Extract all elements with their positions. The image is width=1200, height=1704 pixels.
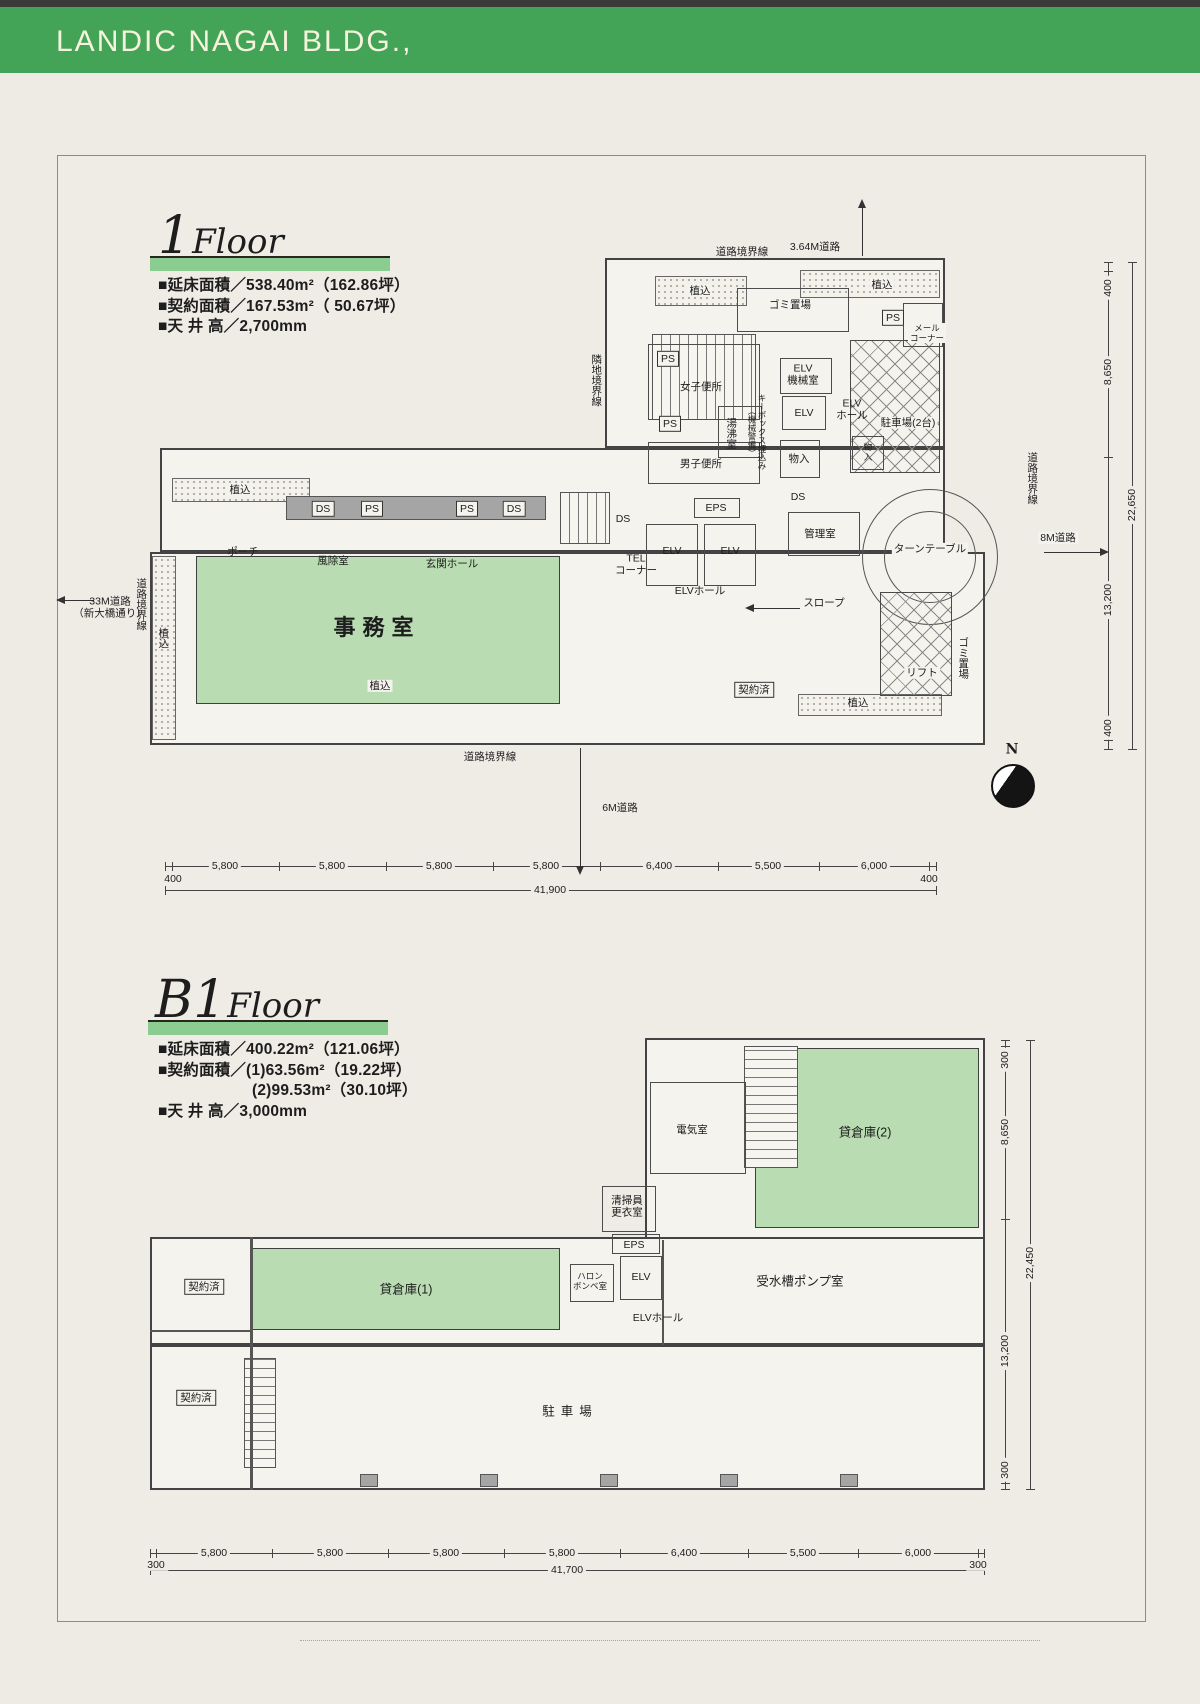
plan-label: ELVホール xyxy=(633,1312,684,1324)
plan-label: ハロン ボンベ室 xyxy=(573,1271,607,1291)
plan-label: 清掃員 更衣室 xyxy=(611,1195,643,1220)
plan-label: 300 xyxy=(144,1559,168,1571)
plan-label: 貸倉庫(1) xyxy=(380,1283,433,1298)
plan-label: 受水槽ポンプ室 xyxy=(756,1275,843,1290)
b1-labels: 電気室貸倉庫(2)清掃員 更衣室EPSハロン ボンベ室ELVELVホール受水槽ポ… xyxy=(0,0,1200,1704)
brochure-page: LANDIC NAGAI BLDG., 1Floor ■延床面積／538.40m… xyxy=(0,0,1200,1704)
plan-label: 5,800 xyxy=(546,1547,578,1559)
plan-label: 13,200 xyxy=(999,1332,1011,1370)
plan-label: 22,450 xyxy=(1024,1244,1036,1282)
plan-label: 300 xyxy=(966,1559,990,1571)
plan-label: 貸倉庫(2) xyxy=(839,1126,892,1141)
plan-label: ELV xyxy=(631,1271,650,1283)
plan-label: 契約済 xyxy=(184,1279,224,1295)
plan-label: 6,400 xyxy=(668,1547,700,1559)
plan-label: 5,800 xyxy=(198,1547,230,1559)
plan-label: 契約済 xyxy=(176,1390,216,1406)
plan-label: 5,500 xyxy=(787,1547,819,1559)
plan-label: 駐車場 xyxy=(542,1405,598,1420)
plan-label: 電気室 xyxy=(676,1124,708,1136)
plan-label: 300 xyxy=(999,1458,1011,1482)
plan-label: 5,800 xyxy=(430,1547,462,1559)
plan-label: 5,800 xyxy=(314,1547,346,1559)
plan-label: 8,650 xyxy=(999,1116,1011,1148)
plan-label: 300 xyxy=(999,1048,1011,1072)
plan-label: 41,700 xyxy=(548,1564,586,1576)
fold-dotted-line xyxy=(300,1640,1040,1641)
plan-label: EPS xyxy=(623,1239,644,1251)
plan-label: 6,000 xyxy=(902,1547,934,1559)
